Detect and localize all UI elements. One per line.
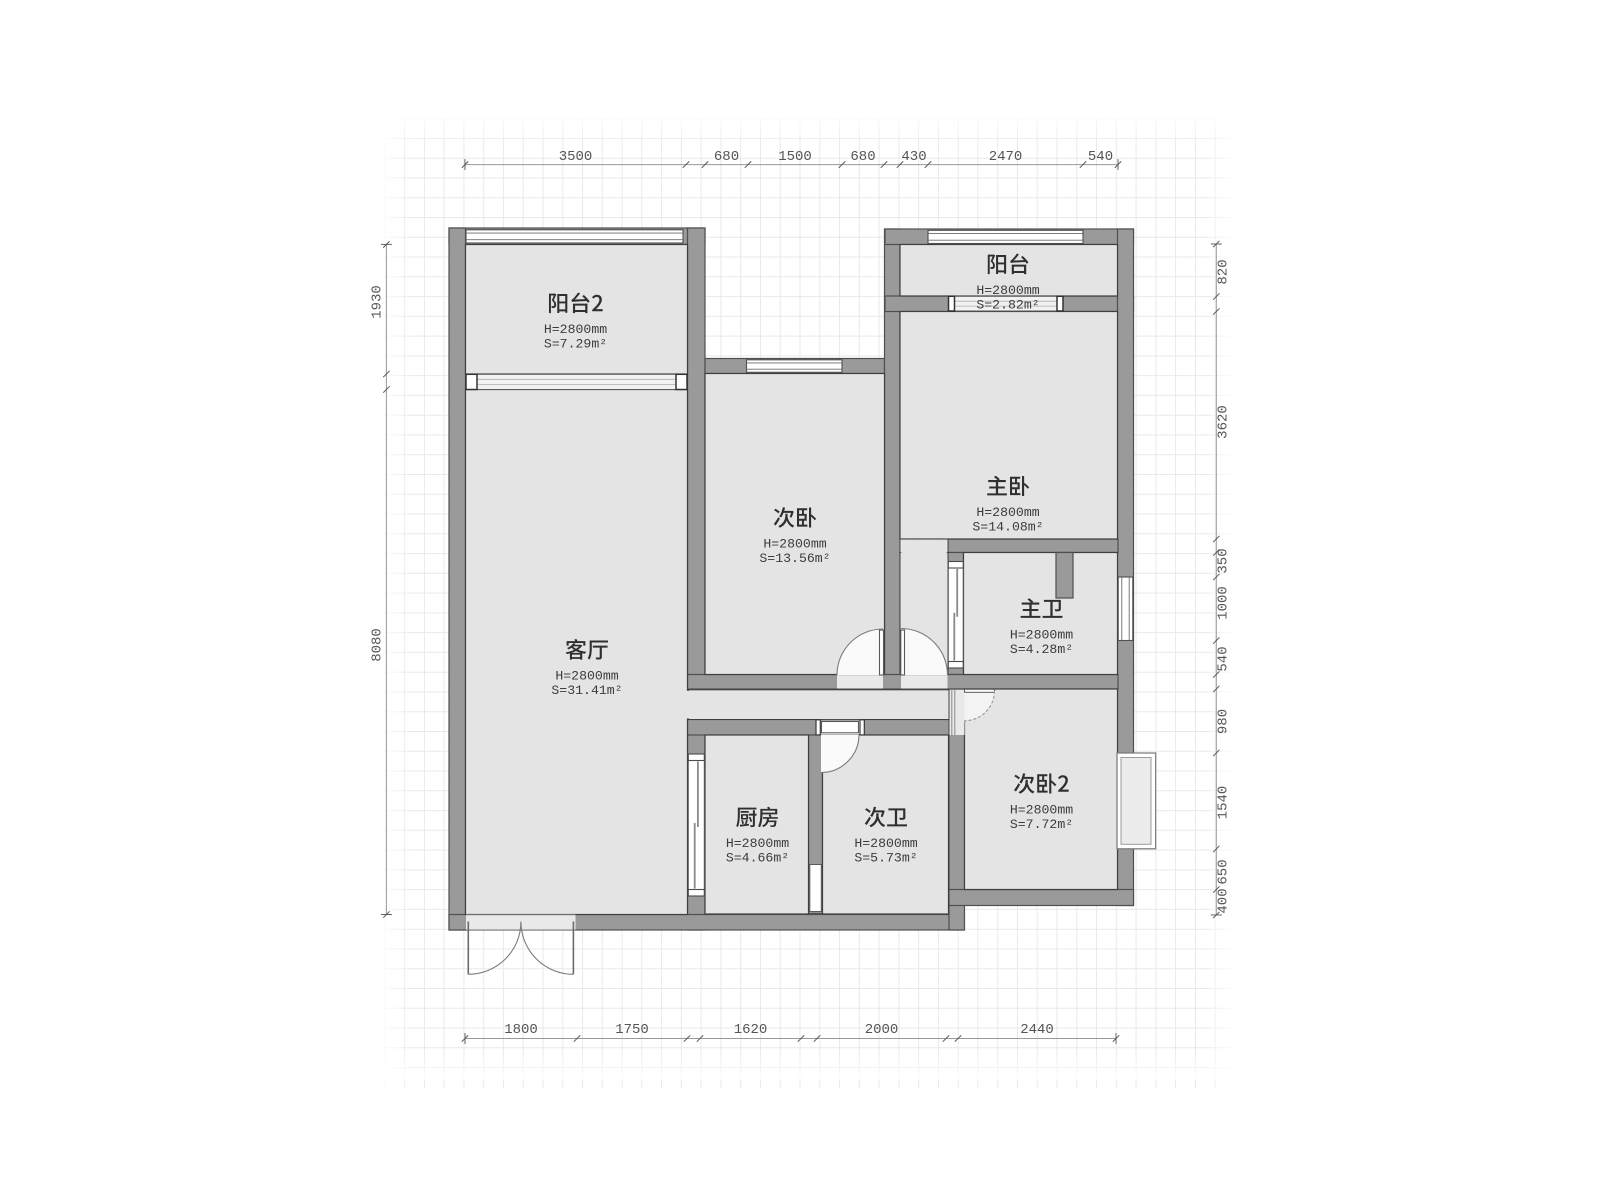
svg-text:H=2800mm: H=2800mm [763,537,826,552]
svg-text:H=2800mm: H=2800mm [1010,803,1073,818]
svg-text:400: 400 [1215,888,1231,913]
svg-text:S=5.73m²: S=5.73m² [854,851,917,866]
svg-text:1540: 1540 [1215,786,1231,820]
svg-text:540: 540 [1088,149,1113,165]
svg-text:430: 430 [901,149,926,165]
svg-text:S=2.82m²: S=2.82m² [976,298,1039,313]
svg-text:H=2800mm: H=2800mm [544,322,607,337]
svg-text:S=7.29m²: S=7.29m² [544,337,607,352]
svg-text:1750: 1750 [615,1022,649,1038]
svg-text:H=2800mm: H=2800mm [1010,628,1073,643]
svg-text:350: 350 [1215,548,1231,573]
svg-text:H=2800mm: H=2800mm [854,836,917,851]
svg-text:1620: 1620 [734,1022,768,1038]
svg-text:H=2800mm: H=2800mm [726,836,789,851]
svg-text:S=4.28m²: S=4.28m² [1010,642,1073,657]
svg-text:1800: 1800 [504,1022,538,1038]
svg-text:650: 650 [1215,859,1231,884]
svg-text:2440: 2440 [1020,1022,1054,1038]
svg-text:3500: 3500 [559,149,593,165]
svg-text:S=7.72m²: S=7.72m² [1010,817,1073,832]
svg-text:980: 980 [1215,709,1231,734]
svg-text:820: 820 [1215,259,1231,284]
svg-text:S=13.56m²: S=13.56m² [759,551,830,566]
svg-text:S=31.41m²: S=31.41m² [551,683,622,698]
svg-text:680: 680 [850,149,875,165]
svg-text:S=4.66m²: S=4.66m² [726,851,789,866]
svg-text:2000: 2000 [865,1022,899,1038]
svg-text:1000: 1000 [1215,586,1231,620]
svg-text:S=14.08m²: S=14.08m² [972,520,1043,535]
svg-text:3620: 3620 [1215,405,1231,439]
svg-text:H=2800mm: H=2800mm [976,505,1039,520]
svg-text:8080: 8080 [369,628,385,662]
svg-text:1930: 1930 [369,285,385,319]
svg-text:H=2800mm: H=2800mm [555,669,618,684]
svg-text:680: 680 [714,149,739,165]
svg-text:H=2800mm: H=2800mm [976,283,1039,298]
svg-text:2470: 2470 [989,149,1023,165]
svg-text:540: 540 [1215,646,1231,671]
svg-text:1500: 1500 [778,149,812,165]
